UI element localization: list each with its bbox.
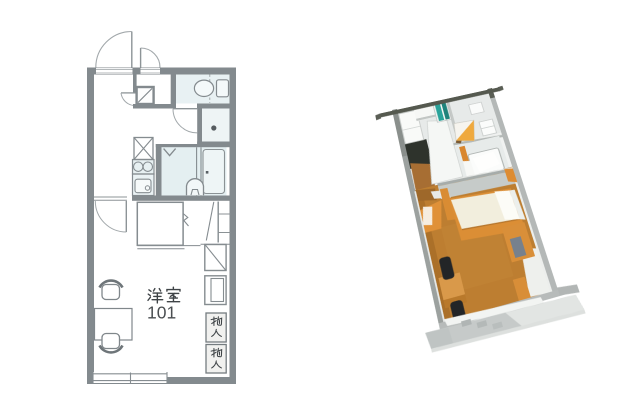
svg-text:101: 101 xyxy=(147,303,176,323)
